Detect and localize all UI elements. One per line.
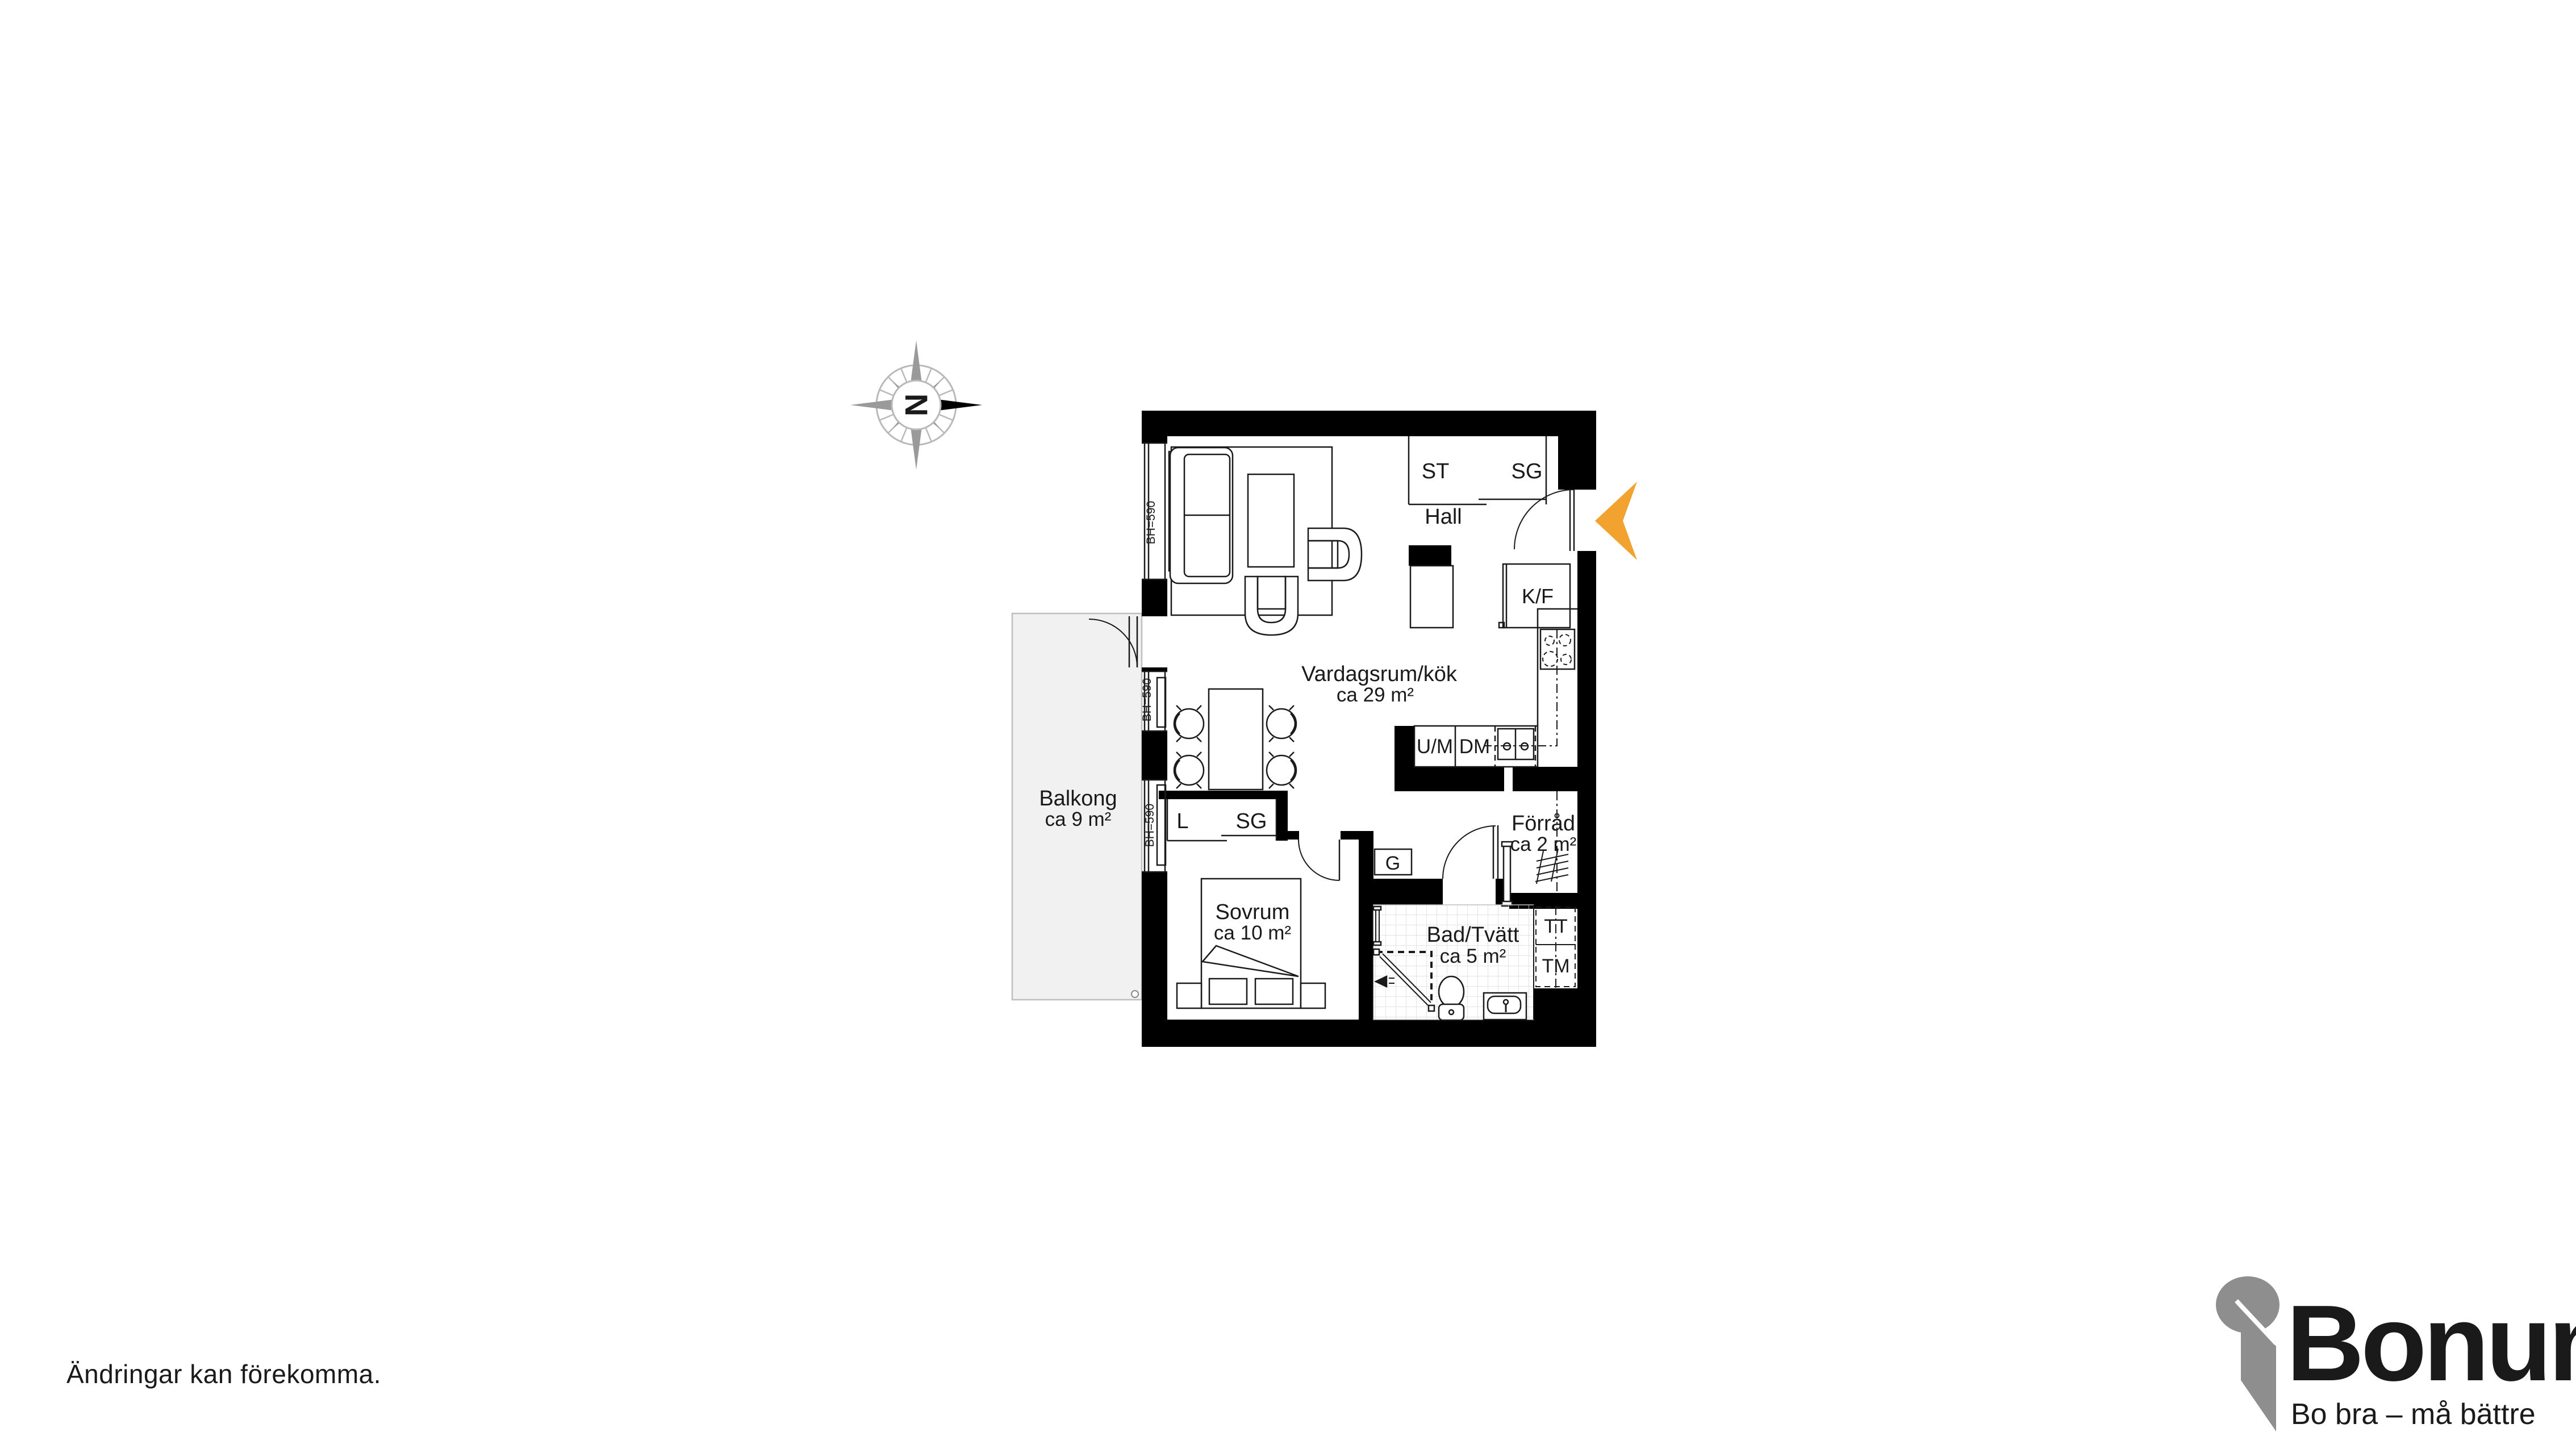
- balcony-label: Balkong: [1039, 787, 1117, 811]
- balcony-area: ca 9 m²: [1045, 808, 1112, 830]
- bathroom-door: [1443, 825, 1498, 879]
- washbasin: [1484, 993, 1526, 1020]
- armchair: [1245, 577, 1298, 635]
- closet-label-st: ST: [1422, 460, 1450, 483]
- dining-table-set: [1174, 689, 1296, 790]
- coffee-table: [1248, 474, 1294, 567]
- bedroom-door: [1299, 840, 1339, 880]
- hall-sideboard: Hall: [1410, 505, 1462, 628]
- pillow: [1209, 979, 1247, 1004]
- laundry-niche: TT TM: [1536, 906, 1575, 988]
- bonum-logo: Bonum Bo bra – må bättre: [2212, 1270, 2576, 1446]
- armchair: [1308, 528, 1362, 581]
- nightstand: [1301, 983, 1325, 1008]
- bonum-tagline: Bo bra – må bättre: [2291, 1398, 2536, 1431]
- disclaimer-text: Ändringar kan förekomma.: [66, 1359, 381, 1389]
- dishwasher-label: DM: [1459, 736, 1490, 758]
- washer-label: TM: [1542, 955, 1569, 977]
- window-height-label: BH=590: [1141, 678, 1154, 721]
- fridge-label: K/F: [1522, 584, 1554, 608]
- bonum-wordmark: Bonum: [2286, 1283, 2576, 1404]
- balcony: Balkong ca 9 m²: [1012, 613, 1142, 1000]
- window-height-label: BH=590: [1145, 501, 1158, 544]
- dining-chair: [1267, 705, 1296, 742]
- window-height-label: BH=590: [1143, 804, 1157, 847]
- compass-letter: N: [899, 394, 934, 416]
- bedroom-area: ca 10 m²: [1214, 922, 1291, 944]
- dining-chair: [1174, 705, 1204, 742]
- nightstand: [1177, 983, 1201, 1008]
- living-room-area: ca 29 m²: [1337, 684, 1414, 706]
- linen-closet-label: L: [1176, 809, 1188, 833]
- bath-area: ca 5 m²: [1440, 945, 1506, 967]
- g-closet-label: G: [1385, 853, 1400, 874]
- hall-closet: ST SG: [1409, 436, 1546, 504]
- floor-plan: Balkong ca 9 m²: [997, 403, 1701, 1062]
- pillow: [1255, 979, 1293, 1004]
- fridge-freezer: K/F: [1499, 564, 1570, 628]
- storage-area: ca 2 m²: [1510, 833, 1577, 855]
- bath-label: Bad/Tvätt: [1427, 923, 1519, 947]
- bedroom-closets: L SG: [1167, 799, 1276, 841]
- compass-rose: N: [848, 337, 984, 473]
- dining-table: [1209, 689, 1263, 790]
- storage-label: Förråd: [1512, 812, 1575, 836]
- closet-label-sg: SG: [1512, 460, 1543, 483]
- wardrobe-label: SG: [1236, 809, 1267, 833]
- g-closet: G: [1375, 849, 1412, 875]
- storage-room: Förråd ca 2 m²: [1510, 791, 1577, 893]
- entrance-arrow: [1595, 482, 1637, 560]
- oven-micro-label: U/M: [1417, 736, 1453, 758]
- sofa: [1170, 448, 1233, 583]
- kitchen-sink: [1498, 729, 1534, 759]
- toilet: [1439, 976, 1464, 1020]
- hall-label: Hall: [1425, 505, 1462, 529]
- dining-chair: [1174, 752, 1204, 788]
- balcony-drain: [1132, 991, 1138, 997]
- bedroom-furniture: Sovrum ca 10 m²: [1177, 879, 1325, 1008]
- bonum-logo-icon: [2216, 1276, 2279, 1431]
- dining-chair: [1267, 752, 1296, 788]
- living-room-label: Vardagsrum/kök: [1301, 662, 1458, 686]
- storage-door-pocket: [1504, 767, 1513, 791]
- bedroom-label: Sovrum: [1216, 900, 1290, 924]
- dryer-label: TT: [1544, 916, 1568, 937]
